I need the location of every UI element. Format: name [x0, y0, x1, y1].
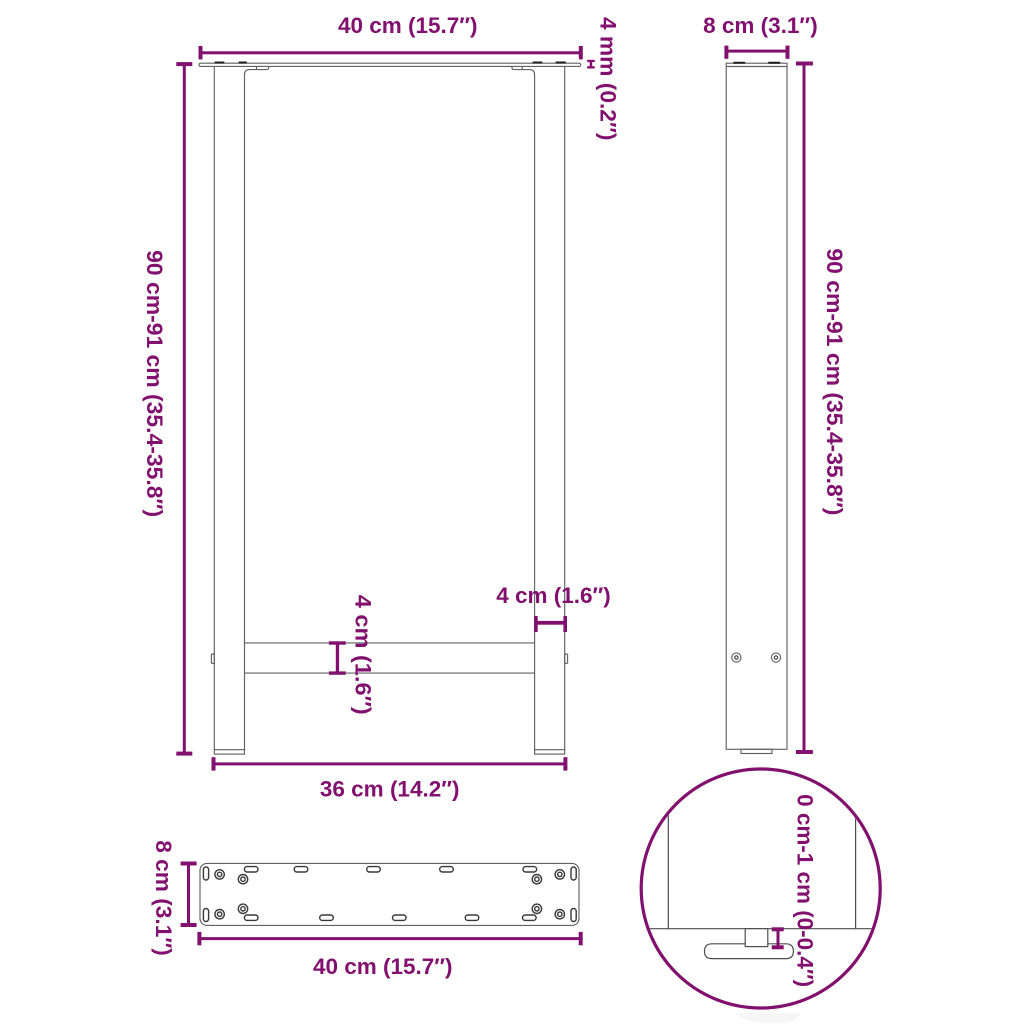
- svg-text:4 cm (1.6″): 4 cm (1.6″): [351, 595, 376, 715]
- svg-text:8 cm (3.1″): 8 cm (3.1″): [151, 840, 176, 956]
- svg-text:40 cm (15.7″): 40 cm (15.7″): [313, 954, 453, 979]
- svg-text:0 cm-1 cm (0-0.4″): 0 cm-1 cm (0-0.4″): [793, 794, 818, 987]
- svg-text:36 cm (14.2″): 36 cm (14.2″): [320, 777, 460, 802]
- svg-text:8 cm (3.1″): 8 cm (3.1″): [703, 13, 818, 38]
- svg-text:90 cm-91 cm (35.4-35.8″): 90 cm-91 cm (35.4-35.8″): [142, 250, 167, 517]
- svg-text:90 cm-91 cm (35.4-35.8″): 90 cm-91 cm (35.4-35.8″): [822, 248, 847, 515]
- svg-text:40 cm (15.7″): 40 cm (15.7″): [338, 13, 478, 38]
- svg-text:4 cm (1.6″): 4 cm (1.6″): [496, 583, 611, 608]
- svg-text:4 mm (0.2″): 4 mm (0.2″): [596, 17, 621, 141]
